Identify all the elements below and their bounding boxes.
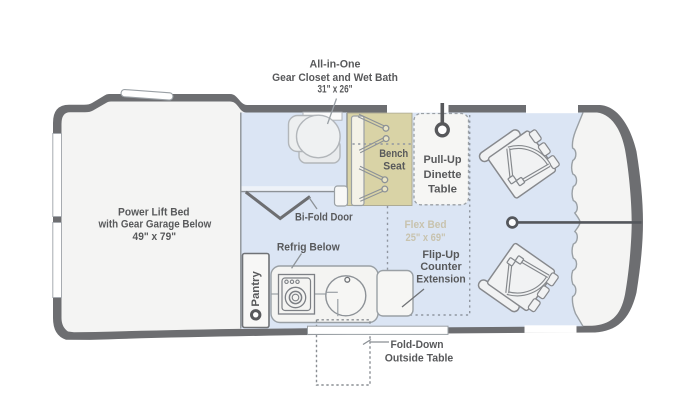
svg-text:Fold-Down: Fold-Down [391,339,444,351]
svg-text:All-in-One: All-in-One [310,59,361,71]
svg-text:Table: Table [428,184,457,196]
svg-text:Counter: Counter [420,261,462,273]
svg-text:Pantry: Pantry [250,271,262,307]
svg-text:Extension: Extension [416,273,465,285]
svg-text:Dinette: Dinette [424,169,462,181]
svg-text:Gear Closet and Wet Bath: Gear Closet and Wet Bath [272,72,398,84]
svg-text:Outside Table: Outside Table [385,353,454,365]
svg-text:Bench: Bench [379,148,408,160]
svg-text:31" x 26": 31" x 26" [318,84,353,96]
svg-text:49" x 79": 49" x 79" [133,231,177,243]
svg-text:Flip-Up: Flip-Up [422,249,459,261]
svg-text:Pull-Up: Pull-Up [424,154,462,166]
svg-text:Flex Bed: Flex Bed [405,219,447,231]
svg-text:25" x 69": 25" x 69" [406,232,446,244]
svg-text:Refrig Below: Refrig Below [277,242,340,254]
svg-text:Bi-Fold Door: Bi-Fold Door [295,212,353,224]
svg-text:with Gear Garage Below: with Gear Garage Below [98,219,212,231]
svg-text:Power Lift Bed: Power Lift Bed [118,207,190,219]
svg-text:Seat: Seat [383,161,405,173]
